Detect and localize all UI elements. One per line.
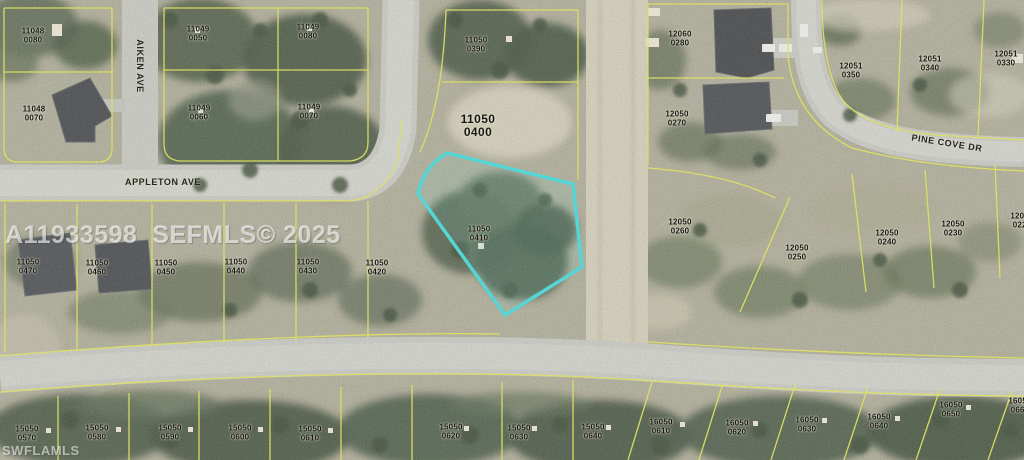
parcel-label-11050-0440: 110500440 (225, 259, 248, 276)
parcel-label-11050-0450: 110500450 (155, 260, 178, 277)
parcel-label-15050-0590: 150500590 (158, 425, 181, 442)
parcel-label-15050-0570: 150500570 (15, 426, 38, 443)
parcel-label-16050-0660: 160500660 (1008, 398, 1024, 415)
parcel-label-16050-0650: 160500650 (939, 402, 962, 419)
aerial-parcel-map: 1104800801104800701104900501104900801104… (0, 0, 1024, 460)
parcel-label-11050-0430: 110500430 (297, 259, 320, 276)
parcel-label-15050-0630: 150500630 (507, 425, 530, 442)
parcel-label-16050-0640: 160500640 (867, 414, 890, 431)
parcel-label-16050-0610: 160500610 (649, 419, 672, 436)
parcel-label-11048-0080: 110480080 (22, 28, 45, 45)
parcel-label-12050-0230: 120500230 (941, 221, 964, 238)
parcel-label-11050-0410: 110500410 (468, 226, 491, 243)
street-label-aiken-ave: AIKEN AVE (135, 39, 145, 92)
parcel-label-15050-0580: 150500580 (85, 425, 108, 442)
parcel-label-16050-0630: 160500630 (795, 417, 818, 434)
parcel-label-12050-0250: 120500250 (785, 245, 808, 262)
parcel-label-12051-0350: 120510350 (839, 63, 862, 80)
parcel-label-15050-0610: 150500610 (298, 426, 321, 443)
brand-watermark: SWFLAMLS (2, 443, 80, 458)
parcel-label-11050-0390: 110500390 (465, 37, 488, 54)
parcel-label-15050-0640: 150500640 (581, 424, 604, 441)
parcel-label-11048-0070: 110480070 (23, 106, 46, 123)
parcel-label-12051-0340: 120510340 (918, 56, 941, 73)
parcel-label-11050-0460: 110500460 (86, 260, 109, 277)
parcel-label-11050-0470: 110500470 (17, 259, 40, 276)
parcel-label-11049-0080: 110490080 (297, 24, 320, 41)
parcel-label-12050-0240: 120500240 (875, 230, 898, 247)
parcel-label-11049-0060: 110490060 (188, 105, 211, 122)
parcel-label-11050-0420: 110500420 (366, 260, 389, 277)
parcel-label-12051-0330: 120510330 (994, 51, 1017, 68)
parcel-label-16050-0620: 160500620 (725, 420, 748, 437)
parcel-label-11049-0070: 110490070 (298, 104, 321, 121)
parcel-label-12060-0280: 120600280 (668, 31, 691, 48)
parcel-label-11049-0050: 110490050 (187, 26, 210, 43)
street-label-appleton-ave: APPLETON AVE (125, 177, 201, 187)
parcel-label-12050-0270: 120500270 (665, 111, 688, 128)
parcel-label-15050-0600: 150500600 (228, 425, 251, 442)
parcel-label-11050-0400: 110500400 (461, 113, 496, 139)
mls-watermark: A11933598 SEFMLS© 2025 (5, 221, 341, 250)
parcel-label-15050-0620: 150500620 (439, 424, 462, 441)
parcel-label-12050-0260: 120500260 (668, 219, 691, 236)
parcel-label-12050-0220: 120500220 (1010, 213, 1024, 230)
